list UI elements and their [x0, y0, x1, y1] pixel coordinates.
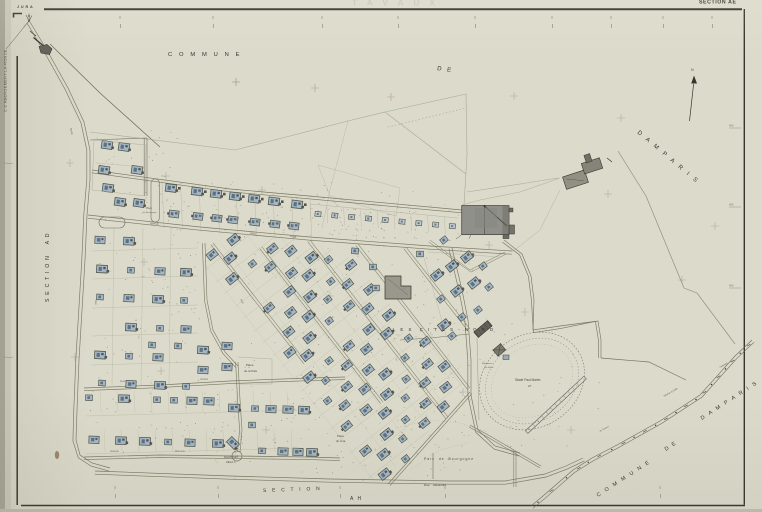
svg-text:400: 400	[729, 284, 734, 288]
svg-text:de la Paix: de la Paix	[244, 369, 258, 373]
svg-text:Avenue: Avenue	[150, 221, 160, 226]
svg-text:Monument: Monument	[482, 362, 493, 365]
svg-text:Place: Place	[146, 207, 153, 210]
svg-text:Verdun: Verdun	[200, 377, 209, 381]
svg-text:400: 400	[729, 203, 734, 207]
svg-text:Rue: Rue	[94, 300, 98, 305]
svg-text:Stade Paul Martin: Stade Paul Martin	[515, 378, 541, 382]
svg-text:aux Morts: aux Morts	[484, 366, 495, 369]
svg-text:Place: Place	[246, 363, 254, 367]
svg-text:de Bourgogne: de Bourgogne	[143, 211, 158, 214]
svg-text:400: 400	[729, 124, 734, 128]
svg-text:27: 27	[528, 384, 532, 388]
svg-text:L E S C I T É S - N O R D: L E S C I T É S - N O R D	[393, 327, 495, 332]
svg-text:N: N	[691, 68, 694, 72]
